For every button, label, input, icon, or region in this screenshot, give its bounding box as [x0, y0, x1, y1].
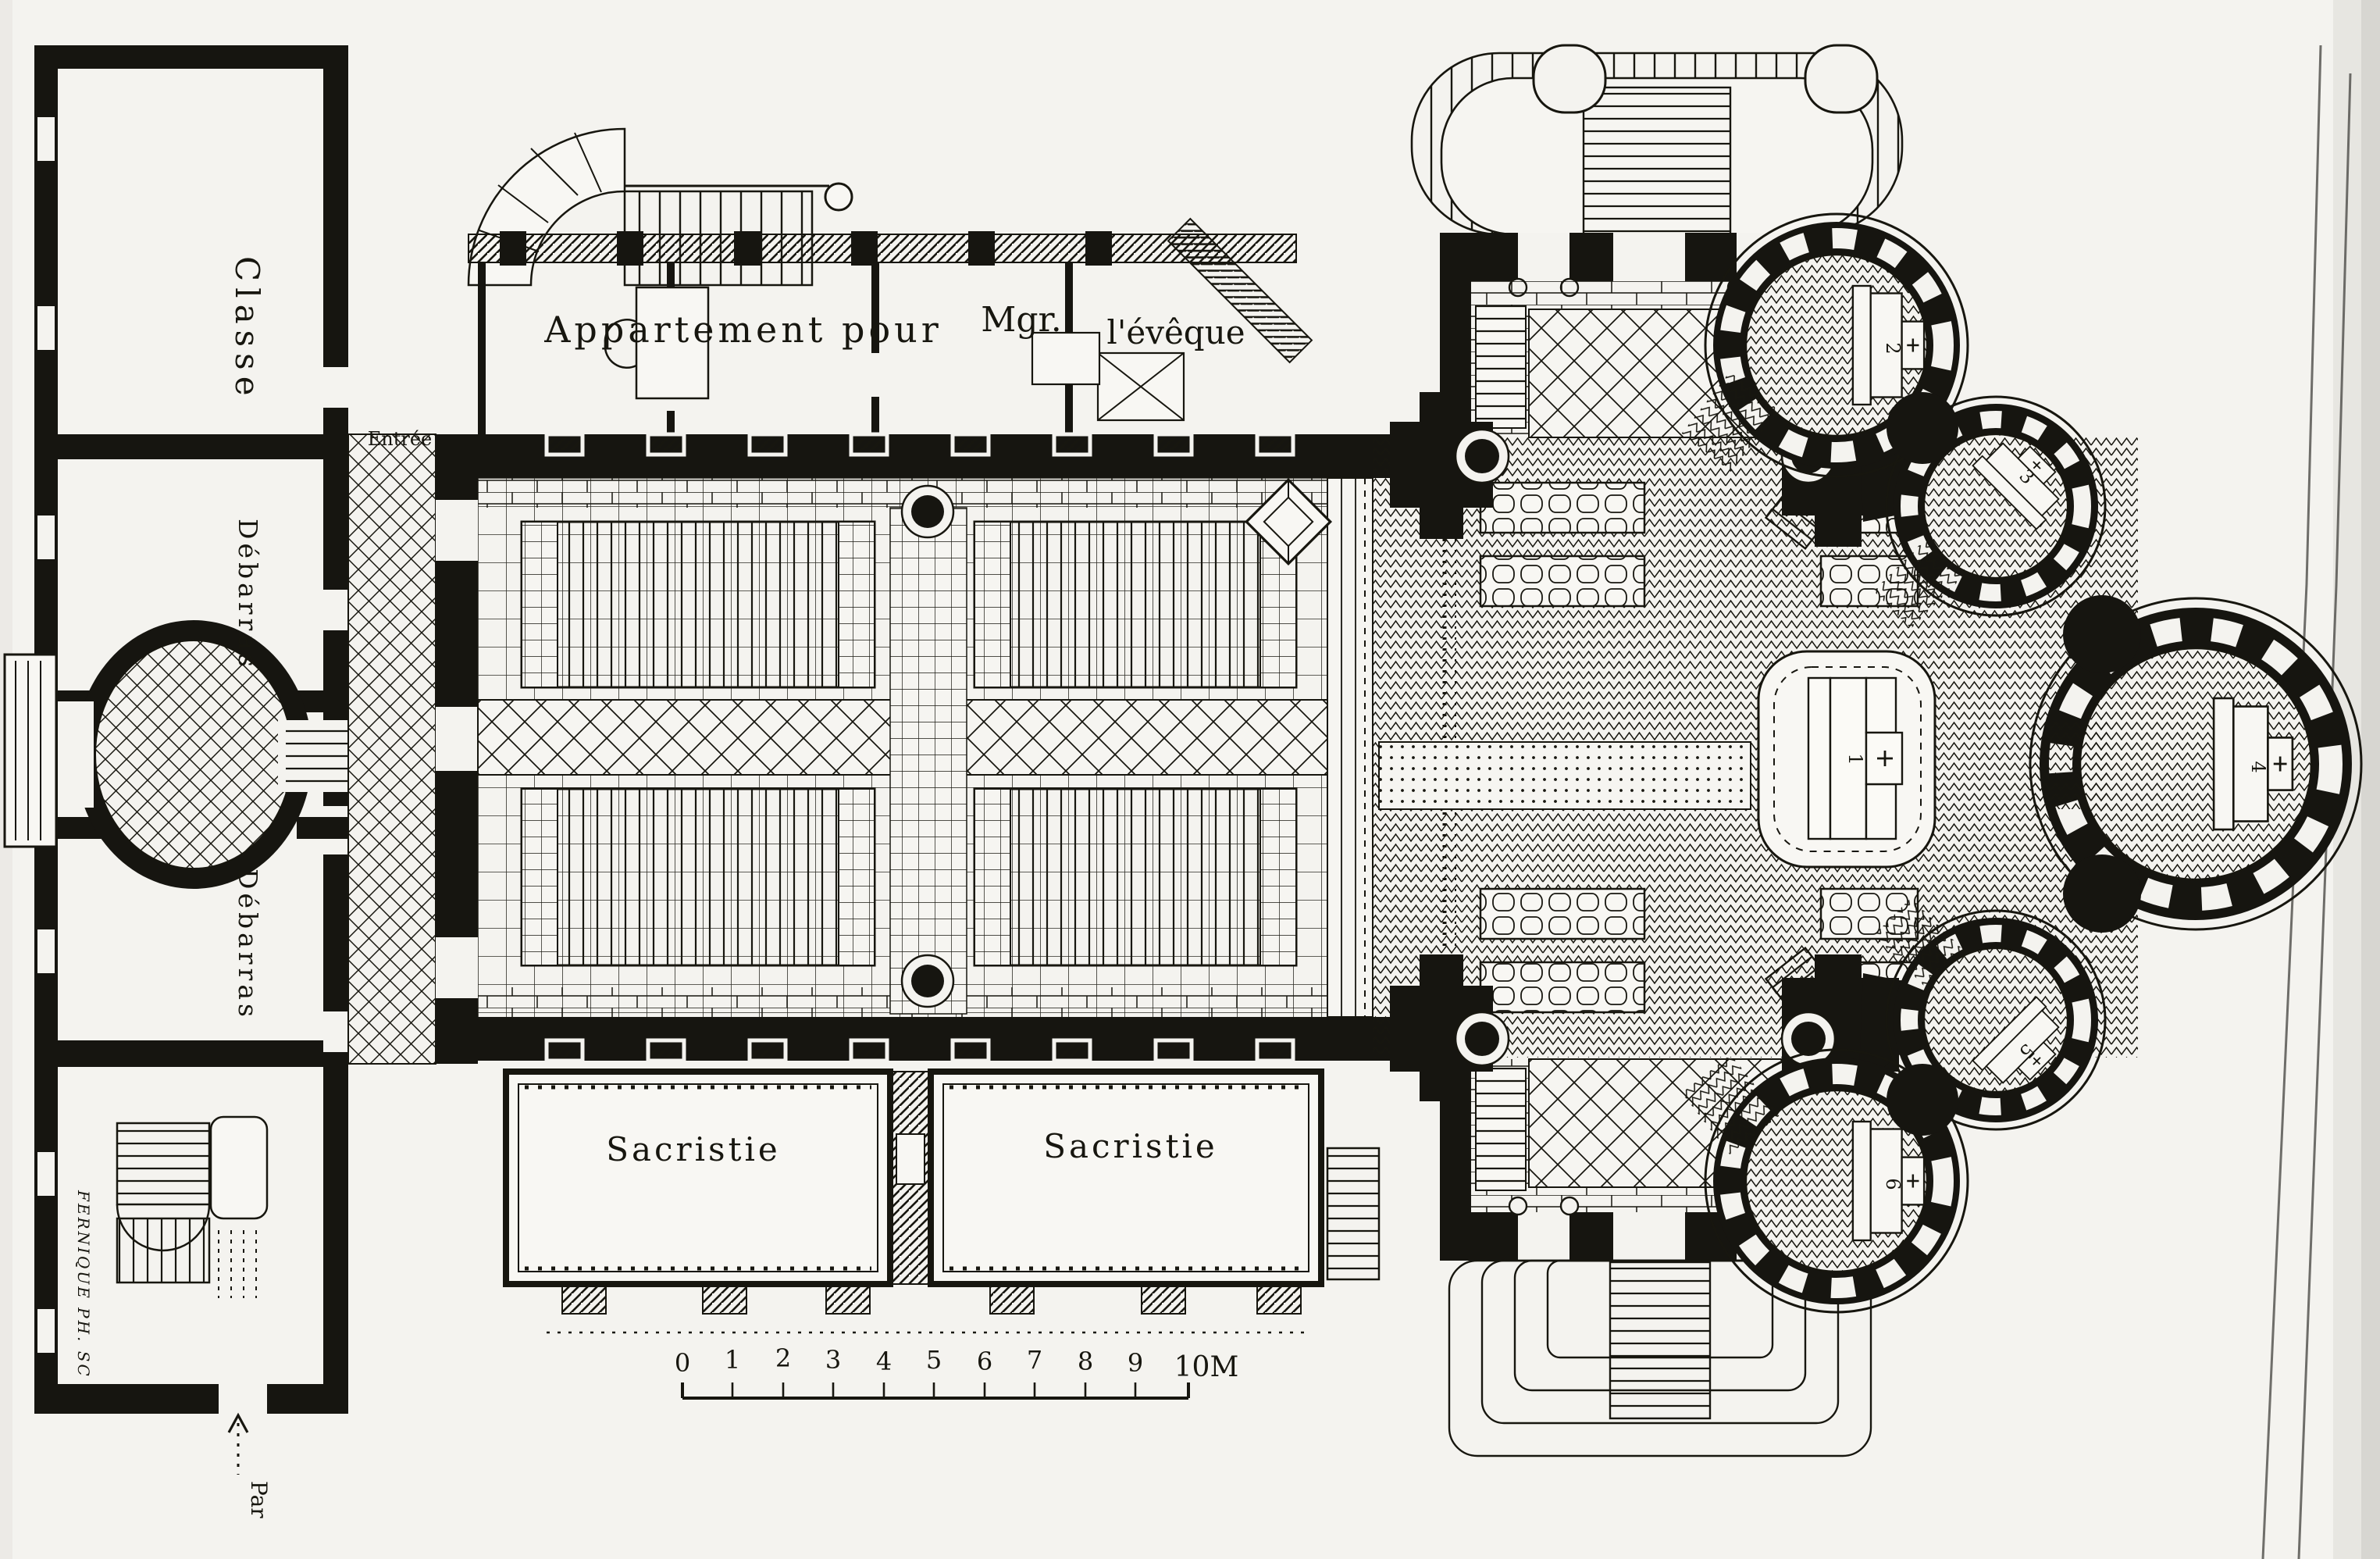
- sacristy-stair: [1327, 1148, 1379, 1279]
- entrance-label: Entrée: [368, 428, 433, 450]
- scale-end-label: 10M: [1174, 1351, 1239, 1383]
- scale-tick: 4: [876, 1347, 892, 1376]
- altar-number-1: 1: [1844, 753, 1866, 765]
- scale-tick: 1: [725, 1345, 740, 1375]
- room-label-debarras-upper: Débarras: [233, 519, 263, 671]
- apartment-label-rest: l'évêque: [1106, 313, 1245, 351]
- closet-x-symbol: [1098, 353, 1184, 420]
- scale-tick: 8: [1078, 1347, 1093, 1376]
- scale-tick: 2: [775, 1343, 791, 1373]
- scale-tick: 0: [675, 1348, 690, 1378]
- apartment-label-abbr: Mgr.: [981, 300, 1061, 340]
- chancel-steps: [1327, 478, 1373, 1017]
- scale-tick: 9: [1128, 1348, 1143, 1378]
- apartment-label-main: Appartement pour: [543, 309, 942, 351]
- room-label-sacristie-right: Sacristie: [1043, 1127, 1218, 1165]
- altar-number-2: 2: [1882, 342, 1904, 354]
- engraver-credit: FERNIQUE PH. SC: [74, 1190, 93, 1379]
- school-west-porch: [5, 655, 56, 847]
- cloister-corridor: [348, 434, 436, 1064]
- scanned-floor-plan-page: 0 1 2 3 4 5 6 7 8 9 10M Classe Débarras …: [0, 0, 2380, 1559]
- scale-tick: 5: [926, 1345, 942, 1375]
- room-label-sacristie-left: Sacristie: [606, 1130, 781, 1168]
- cabinet-symbol: [1032, 333, 1099, 384]
- room-label-debarras-lower: Débarras: [233, 869, 263, 1021]
- altar-number-4: 4: [2247, 761, 2269, 772]
- scale-tick: 6: [977, 1347, 992, 1376]
- scan-edge-dark: [2361, 0, 2380, 1559]
- scale-tick: 7: [1027, 1345, 1042, 1375]
- scale-tick: 3: [825, 1345, 841, 1375]
- floor-plan-svg: 0 1 2 3 4 5 6 7 8 9 10M Classe Débarras …: [0, 0, 2380, 1559]
- room-label-classe: Classe: [228, 256, 266, 402]
- nave: [436, 434, 1440, 1064]
- altar-number-6: 6: [1882, 1178, 1904, 1190]
- path-label-par: Par: [246, 1481, 272, 1518]
